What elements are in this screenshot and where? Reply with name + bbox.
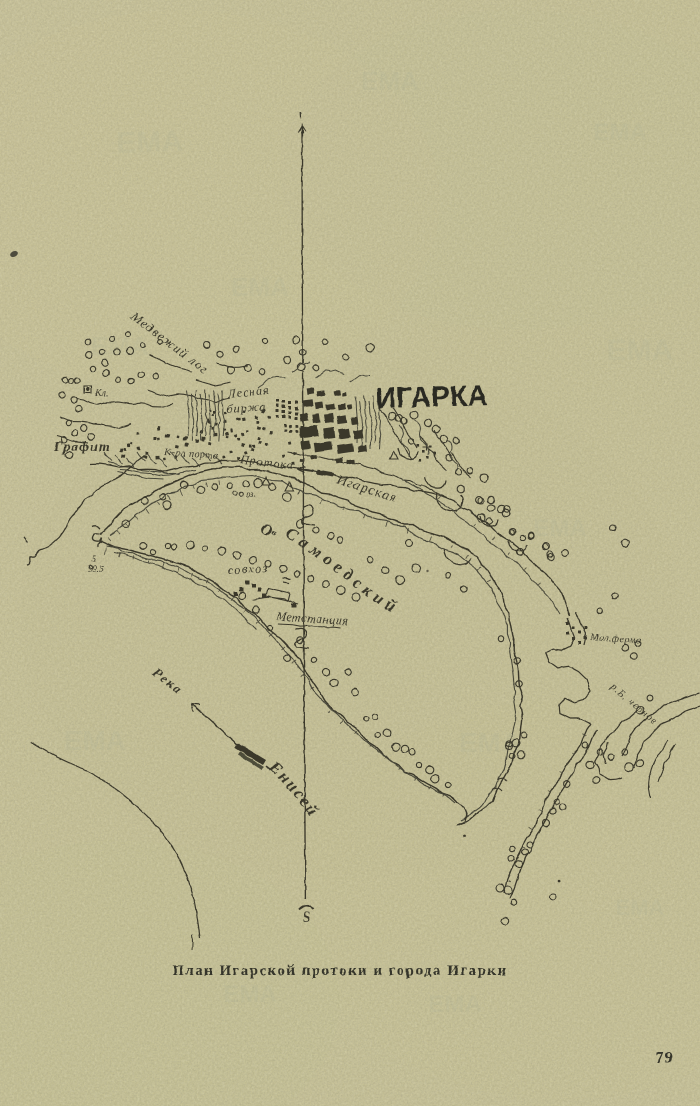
svg-text:ЕМА: ЕМА: [593, 119, 646, 146]
svg-text:оз.: оз.: [246, 489, 256, 499]
svg-text:Графит: Графит: [53, 440, 111, 455]
svg-text:ИГАРКА: ИГАРКА: [375, 380, 488, 415]
svg-text:совхоз: совхоз: [227, 561, 268, 577]
svg-text:5: 5: [92, 554, 97, 564]
svg-text:ЕМА: ЕМА: [428, 991, 481, 1018]
svg-text:ЕМА: ЕМА: [116, 125, 184, 160]
svg-text:Кл.: Кл.: [94, 388, 109, 399]
svg-text:ЕМА: ЕМА: [231, 272, 289, 302]
svg-text:ЕМА: ЕМА: [616, 895, 665, 920]
svg-text:План Игарской протоки и города: План Игарской протоки и города Игарки: [173, 963, 508, 979]
svg-text:ЕМА: ЕМА: [533, 515, 586, 542]
svg-text:биржа: биржа: [226, 399, 267, 416]
svg-text:ЕМА: ЕМА: [64, 725, 126, 756]
svg-text:ЕМА: ЕМА: [607, 334, 674, 367]
svg-text:ЕМА: ЕМА: [361, 66, 419, 96]
svg-text:79: 79: [655, 1048, 674, 1067]
svg-text:ЕМА: ЕМА: [223, 981, 276, 1008]
svg-text:S: S: [303, 910, 311, 926]
